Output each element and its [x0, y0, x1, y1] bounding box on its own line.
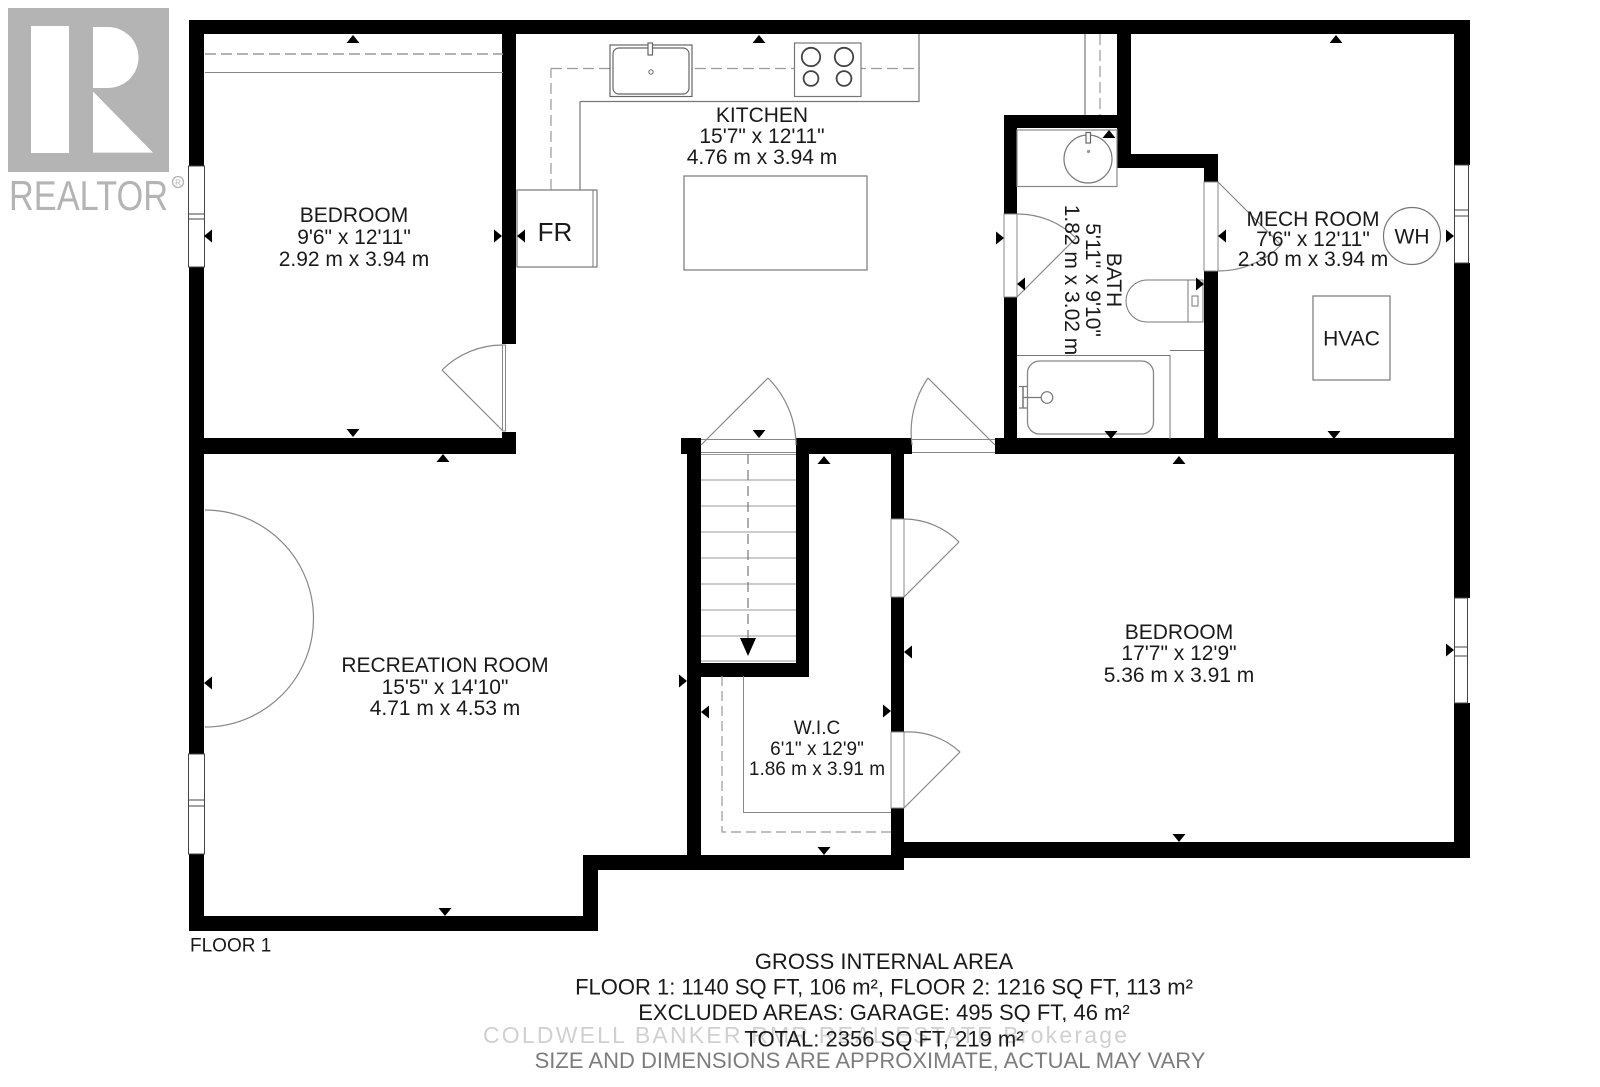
svg-text:BEDROOM: BEDROOM	[1125, 621, 1234, 644]
svg-text:5.36 m x 3.91 m: 5.36 m x 3.91 m	[1104, 664, 1255, 687]
svg-text:RECREATION ROOM: RECREATION ROOM	[341, 654, 548, 677]
svg-text:15'5" x 14'10": 15'5" x 14'10"	[382, 676, 509, 699]
svg-text:REALTOR: REALTOR	[9, 172, 168, 219]
svg-text:SIZE AND DIMENSIONS ARE APPROX: SIZE AND DIMENSIONS ARE APPROXIMATE, ACT…	[535, 1048, 1206, 1073]
svg-text:BATH: BATH	[1102, 253, 1125, 307]
svg-text:W.I.C: W.I.C	[794, 718, 840, 739]
svg-text:17'7" x 12'9": 17'7" x 12'9"	[1121, 642, 1236, 665]
svg-text:HVAC: HVAC	[1323, 328, 1380, 351]
svg-text:4.76 m x 3.94 m: 4.76 m x 3.94 m	[687, 146, 838, 169]
svg-text:2.92 m x 3.94 m: 2.92 m x 3.94 m	[279, 248, 430, 271]
svg-text:KITCHEN: KITCHEN	[716, 104, 808, 127]
svg-text:6'1" x 12'9": 6'1" x 12'9"	[770, 739, 864, 760]
svg-text:GROSS INTERNAL AREA: GROSS INTERNAL AREA	[755, 949, 1014, 974]
svg-text:4.71 m x 4.53 m: 4.71 m x 4.53 m	[370, 697, 521, 720]
svg-text:5'11" x 9'10": 5'11" x 9'10"	[1081, 223, 1104, 337]
svg-text:FLOOR 1: 1140 SQ FT, 106 m², F: FLOOR 1: 1140 SQ FT, 106 m², FLOOR 2: 12…	[575, 975, 1193, 1000]
svg-text:FLOOR 1: FLOOR 1	[190, 936, 271, 957]
svg-text:15'7" x 12'11": 15'7" x 12'11"	[699, 125, 824, 148]
svg-text:9'6" x 12'11": 9'6" x 12'11"	[297, 226, 411, 249]
svg-text:FR: FR	[538, 217, 573, 247]
svg-text:2.30 m x 3.94 m: 2.30 m x 3.94 m	[1238, 248, 1389, 271]
svg-text:WH: WH	[1395, 226, 1430, 249]
svg-text:1.82 m x 3.02 m: 1.82 m x 3.02 m	[1060, 205, 1083, 356]
svg-text:1.86 m x 3.91 m: 1.86 m x 3.91 m	[749, 759, 885, 780]
svg-text:BEDROOM: BEDROOM	[300, 204, 409, 227]
svg-text:R: R	[175, 179, 181, 188]
